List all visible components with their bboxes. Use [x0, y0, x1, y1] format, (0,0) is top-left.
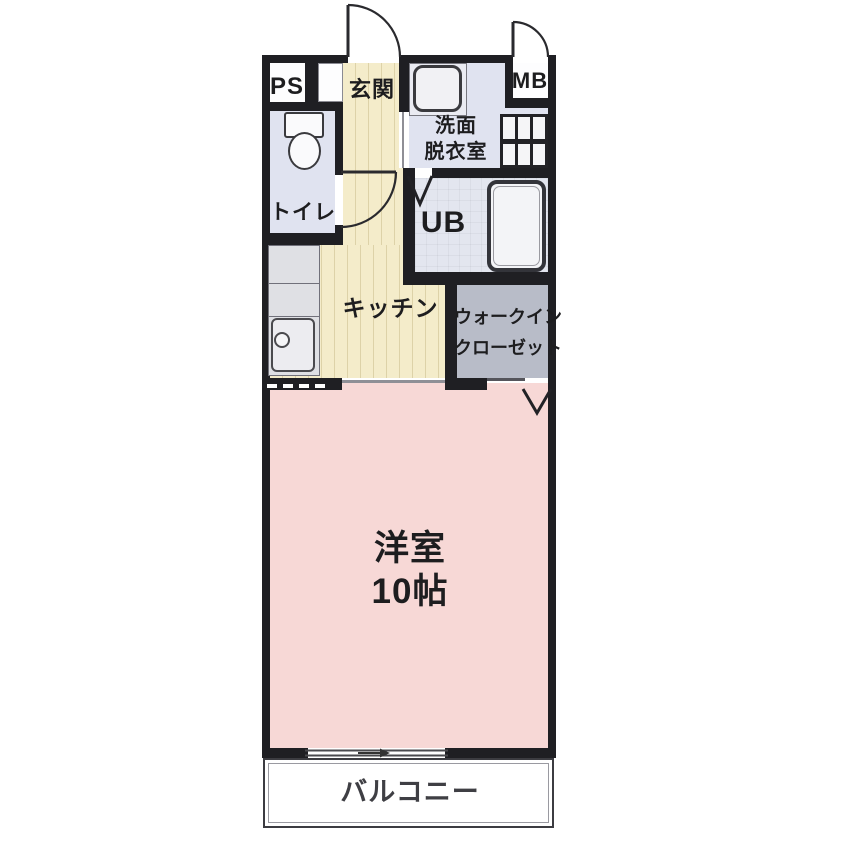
floor-plan: PS 玄関 MB 洗面 脱衣室 トイレ UB キッチン ウォークイン クローゼッ…: [0, 0, 846, 846]
wall-right: [548, 55, 556, 758]
label-washroom-line2: 脱衣室: [406, 139, 506, 165]
line-kitchen-bedroom-opening: [342, 380, 445, 383]
label-balcony: バルコニー: [330, 770, 490, 809]
washing-machine-pan: [500, 114, 548, 168]
wall-mb-bottom: [505, 98, 556, 108]
wall-dash: [315, 384, 325, 388]
wall-toilet-right: [335, 102, 343, 175]
label-unit-bath: UB: [415, 206, 472, 240]
wall-left: [262, 55, 270, 758]
wall-dash: [267, 384, 277, 388]
meter-box-door-arc: [513, 22, 548, 57]
wall-bottom-right: [445, 748, 556, 758]
toilet-bowl: [288, 132, 321, 170]
wall-below-ps: [262, 102, 343, 111]
bathtub: [487, 180, 546, 272]
wall-top-mid: [406, 55, 513, 63]
label-toilet: トイレ: [270, 196, 336, 226]
label-washroom: 洗面 脱衣室: [406, 113, 506, 165]
entrance-door-arc: [348, 5, 400, 57]
label-ps: PS: [268, 73, 306, 101]
label-entrance: 玄関: [343, 72, 401, 104]
label-western-room: 洋室 10帖: [330, 527, 490, 613]
label-western-room-line1: 洋室: [330, 527, 490, 570]
washbasin: [413, 65, 462, 112]
label-wic-line1: ウォークイン: [454, 302, 551, 333]
label-western-room-line2: 10帖: [330, 570, 490, 613]
wall-washroom-bath: [432, 168, 556, 178]
counter-divider: [269, 283, 319, 284]
label-walk-in-closet: ウォークイン クローゼット: [454, 302, 551, 364]
wall-dash: [283, 384, 293, 388]
room-hallway: [343, 168, 403, 245]
shoe-cabinet: [318, 63, 343, 102]
wall-bath-left: [403, 168, 415, 285]
wall-closet-bottom: [445, 378, 487, 390]
counter-divider: [269, 316, 319, 317]
wall-bottom-left: [262, 748, 308, 758]
wall-bath-bottom: [403, 272, 556, 285]
label-meter-box: MB: [511, 68, 549, 94]
wall-toilet-bottom: [262, 233, 343, 245]
kitchen-faucet: [274, 332, 290, 348]
label-washroom-line1: 洗面: [406, 113, 506, 139]
window-center-arrow: [380, 749, 390, 758]
line-hall-washroom-opening: [402, 112, 404, 168]
line-closet-bottom: [487, 378, 525, 381]
label-wic-line2: クローゼット: [454, 333, 551, 364]
wall-dash: [299, 384, 309, 388]
label-kitchen: キッチン: [333, 289, 448, 323]
